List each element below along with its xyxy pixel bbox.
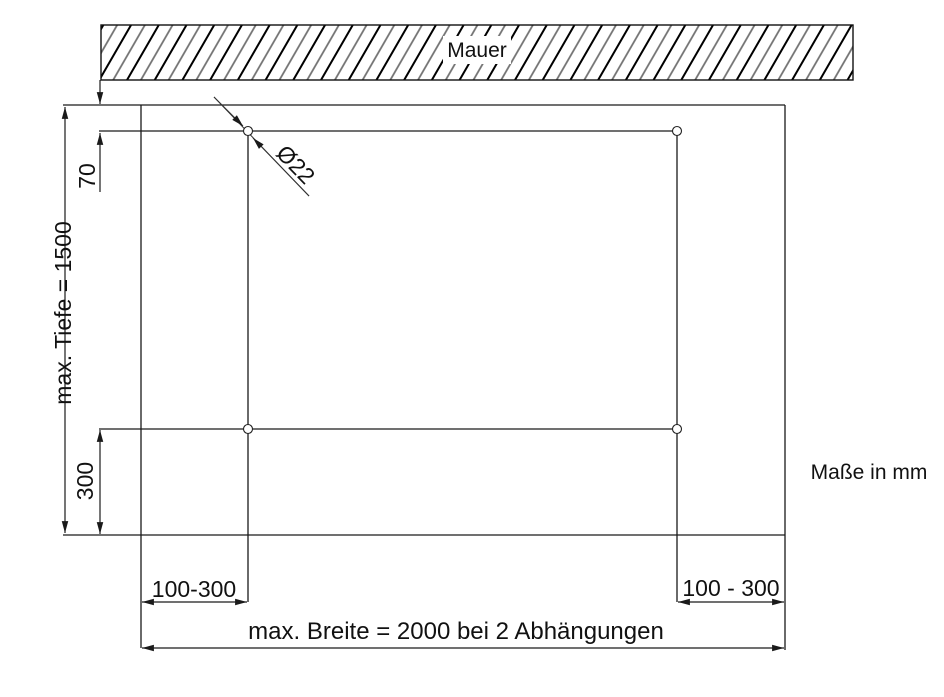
depth-dimension-label: max. Tiefe = 1500	[50, 221, 76, 404]
right-spacing-label: 100 - 300	[682, 575, 779, 601]
width-dimension-label: max. Breite = 2000 bei 2 Abhängungen	[248, 618, 664, 645]
technical-drawing: Mauer max. Tiefe = 1500 70 300 100-300 1…	[0, 0, 944, 697]
wall-label: Mauer	[447, 39, 507, 62]
hole-leader-arrow-upper	[214, 97, 243, 126]
left-spacing-label: 100-300	[152, 576, 236, 602]
suspension-hole-top-left	[244, 127, 253, 136]
bottom-offset-label: 300	[72, 462, 98, 500]
suspension-hole-bottom-left	[244, 425, 253, 434]
top-offset-label: 70	[74, 163, 100, 189]
drawing-canvas: Mauer max. Tiefe = 1500 70 300 100-300 1…	[0, 0, 944, 697]
hole-diameter-label: Ø22	[271, 140, 320, 189]
units-note: Maße in mm	[811, 461, 928, 484]
suspension-hole-bottom-right	[673, 425, 682, 434]
suspension-hole-top-right	[673, 127, 682, 136]
